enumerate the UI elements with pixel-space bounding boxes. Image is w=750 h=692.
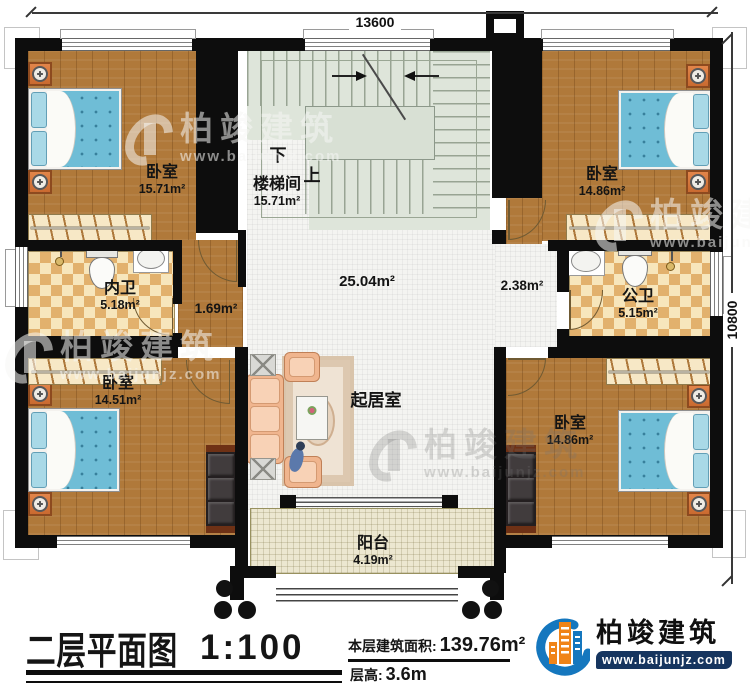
pillows [693, 94, 709, 166]
balcony-sliding-door [296, 497, 442, 507]
balcony-post [230, 566, 244, 600]
room-label-bath-inner: 内卫5.18m² [74, 280, 166, 312]
nightstand [28, 170, 52, 194]
corridor-right-area-label: 2.38m² [486, 278, 558, 293]
wall [173, 333, 182, 347]
column-ball [216, 580, 233, 597]
brand-logo-icon [536, 618, 590, 680]
wall [557, 329, 569, 347]
nightstand [28, 62, 52, 86]
wall [548, 240, 723, 251]
floor-height-row: 层高: 3.6m [350, 664, 427, 685]
nightstand [686, 64, 710, 88]
floor-drain-icon [55, 257, 64, 266]
room-label-bedroom-tl: 卧室15.71m² [116, 164, 208, 196]
title-underline-thin [26, 681, 342, 683]
wall [548, 347, 723, 358]
brand-url: www.baijunjz.com [596, 651, 732, 669]
wall [235, 347, 248, 573]
bed-sheet [664, 413, 693, 489]
floor-area-row: 本层建筑面积: 139.76m² [348, 634, 525, 657]
floor-drain-icon [666, 262, 675, 271]
wall [494, 347, 506, 573]
column-ball [462, 601, 480, 619]
dresser-cabinet [506, 445, 536, 533]
coffee-table [296, 396, 328, 440]
wardrobe-hangers [606, 358, 712, 385]
bed-sheet [664, 93, 693, 167]
bed-bottom-left [28, 408, 120, 492]
door-bedroom-tr [508, 200, 546, 240]
sofa-main [246, 374, 284, 464]
stair-arrow-right-icon [356, 71, 367, 81]
armchair [284, 352, 320, 382]
column-ball [214, 601, 232, 619]
door-bedroom-bl [186, 360, 230, 404]
window [15, 247, 28, 307]
nightstand [687, 492, 711, 516]
drawing-scale: 1:100 [200, 628, 305, 668]
brand-logo: 柏竣建筑 www.baijunjz.com [536, 618, 732, 680]
wall [15, 336, 182, 347]
corridor-left-area-label: 1.69m² [180, 301, 252, 316]
floor-plan-canvas: 卧室15.71m² 下 上 楼梯间15.71m² 卧室14.86m² 内卫5.1… [0, 0, 750, 692]
wall [557, 240, 569, 292]
dimension-right-value: 10800 [724, 293, 740, 347]
stair-arrow-line-left [332, 75, 356, 77]
pillows [693, 414, 709, 488]
door-bedroom-tl [198, 240, 237, 282]
wall [280, 495, 296, 508]
wall [15, 347, 178, 358]
window [710, 252, 723, 316]
bed-top-right [618, 90, 712, 170]
balcony-railing [276, 588, 458, 602]
bed-top-left [28, 88, 122, 170]
room-label-living: 起居室 [330, 391, 422, 410]
room-label-bedroom-bl: 卧室14.51m² [72, 375, 164, 407]
brand-name: 柏竣建筑 [596, 618, 732, 649]
column-ball [484, 601, 502, 619]
window [552, 536, 668, 548]
stair-down-label: 下 [268, 146, 288, 165]
wall [15, 240, 182, 251]
bed-bottom-right [618, 410, 712, 492]
column-ball [238, 601, 256, 619]
nightstand [686, 170, 710, 194]
door-bedroom-br [508, 358, 546, 396]
wardrobe-hangers [566, 214, 712, 242]
wall [442, 495, 458, 508]
column-ball [482, 580, 499, 597]
fraction-line [348, 659, 510, 662]
room-label-stairwell: 楼梯间15.71m² [229, 176, 325, 208]
dimension-top-value: 13600 [349, 14, 401, 30]
wall-shaft-right [492, 38, 542, 198]
stair-arrow-line-right [415, 75, 439, 77]
room-label-bedroom-br: 卧室14.86m² [524, 415, 616, 447]
pillows [31, 412, 47, 488]
title-underline-thick [26, 670, 342, 675]
wall [238, 230, 246, 287]
room-label-balcony: 阳台4.19m² [328, 535, 418, 567]
window [305, 38, 430, 51]
pillows [31, 92, 47, 166]
stair-arrow-left-icon [404, 71, 415, 81]
window [57, 536, 190, 548]
room-label-bath-public: 公卫5.15m² [592, 288, 684, 320]
nightstand [687, 384, 711, 408]
page-title: 二层平面图 [26, 620, 178, 675]
window [543, 38, 670, 51]
wall [492, 230, 506, 244]
wall [557, 336, 723, 347]
room-label-bedroom-tr: 卧室14.86m² [556, 166, 648, 198]
stair-landing [305, 106, 435, 160]
corridor-right-floor [495, 244, 557, 347]
dresser-cabinet [206, 445, 236, 533]
nightstand [28, 382, 52, 406]
wall [173, 240, 182, 304]
side-table [250, 354, 276, 376]
side-table [250, 458, 276, 480]
chimney [486, 11, 524, 41]
wardrobe-hangers [28, 214, 152, 243]
nightstand [28, 492, 52, 516]
hall-area-label: 25.04m² [326, 274, 408, 291]
window [62, 38, 192, 51]
